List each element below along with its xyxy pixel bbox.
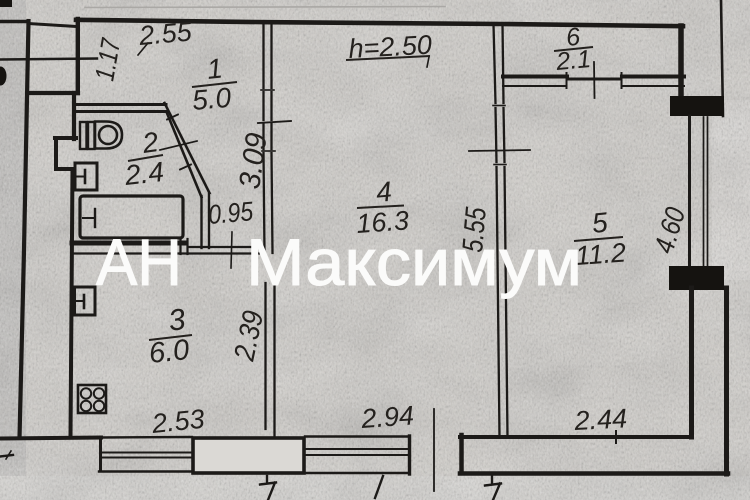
svg-text:2.4: 2.4 — [122, 156, 165, 191]
svg-text:11.2: 11.2 — [574, 238, 627, 271]
svg-text:5.0: 5.0 — [191, 82, 233, 116]
svg-text:Максимум: Максимум — [246, 225, 582, 299]
svg-text:2.94: 2.94 — [359, 400, 415, 434]
svg-text:АН: АН — [96, 225, 182, 299]
svg-text:2.44: 2.44 — [573, 403, 628, 436]
svg-text:1: 1 — [205, 53, 224, 85]
svg-text:6.0: 6.0 — [147, 334, 190, 370]
svg-text:2.55: 2.55 — [137, 16, 194, 51]
svg-text:4: 4 — [375, 176, 393, 208]
svg-text:2.1: 2.1 — [554, 45, 592, 76]
svg-text:2.53: 2.53 — [149, 404, 205, 439]
